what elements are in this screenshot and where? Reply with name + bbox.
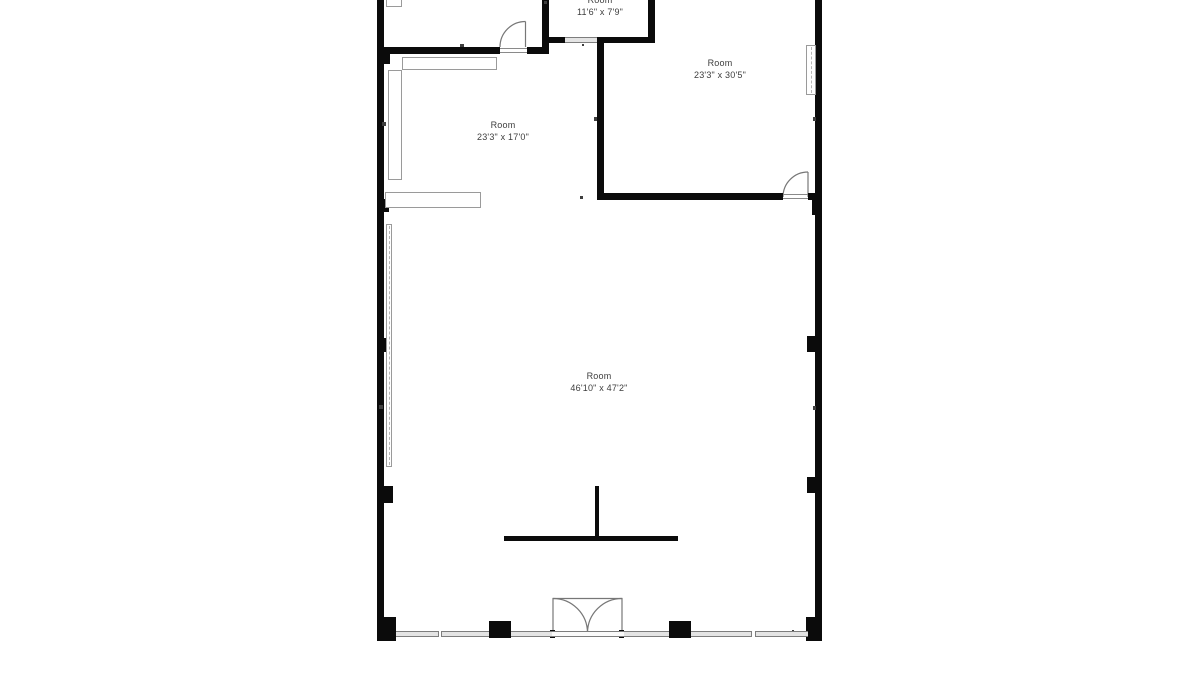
wall-pier — [812, 200, 822, 215]
tick-mark — [460, 44, 464, 47]
threshold-line — [500, 48, 527, 49]
tick-mark — [544, 1, 547, 4]
wall-pier — [807, 336, 822, 352]
wall-segment — [669, 621, 691, 638]
wall-segment — [648, 0, 655, 43]
room-name: Room — [477, 119, 529, 131]
dashed-strip-centerline — [389, 226, 390, 465]
tick-mark — [813, 117, 816, 121]
window-strip — [691, 631, 808, 637]
wall-segment — [806, 617, 822, 641]
door-sill — [552, 631, 624, 637]
dashed-strip — [386, 224, 392, 467]
tick-mark — [379, 405, 383, 409]
window-divider — [438, 631, 442, 637]
tick-mark — [813, 406, 816, 410]
wall-segment — [597, 37, 655, 43]
threshold-line — [783, 198, 808, 199]
wall-segment — [489, 621, 511, 638]
tick-mark — [382, 122, 386, 126]
wall-segment — [597, 193, 783, 200]
window-divider — [751, 631, 756, 637]
wall-segment — [595, 486, 599, 541]
room-dimensions: 23'3" x 30'5" — [694, 69, 746, 81]
room-dimensions: 11'6" x 7'9" — [577, 6, 623, 18]
tick-mark — [580, 196, 583, 199]
room-label-right: Room 23'3" x 30'5" — [694, 57, 746, 81]
wall-pier — [807, 477, 822, 493]
wall-segment — [815, 0, 822, 641]
room-name: Room — [570, 370, 627, 382]
door-swing-arc — [500, 22, 526, 48]
threshold-line — [783, 194, 808, 195]
window-strip — [396, 631, 489, 637]
wall-segment — [549, 37, 565, 43]
tick-mark — [582, 44, 584, 46]
wall-segment — [377, 47, 500, 54]
wall-segment — [542, 0, 549, 54]
threshold-line — [500, 52, 527, 53]
wall-segment — [808, 193, 822, 200]
room-name: Room — [694, 57, 746, 69]
wall-segment — [377, 617, 396, 641]
dashed-strip-centerline — [811, 47, 812, 93]
wall-segment — [597, 37, 604, 200]
room-label-middle: Room 23'3" x 17'0" — [477, 119, 529, 143]
counter-fixture — [385, 192, 481, 208]
wall-pier — [379, 486, 393, 503]
dashed-strip — [806, 45, 816, 95]
wall-segment — [377, 0, 384, 641]
counter-fixture — [388, 70, 402, 180]
room-label-small: Room 11'6" x 7'9" — [577, 0, 623, 18]
wall-segment — [504, 536, 678, 541]
room-dimensions: 23'3" x 17'0" — [477, 131, 529, 143]
window-strip — [565, 37, 597, 43]
window-strip — [624, 631, 669, 637]
door-swing-arc — [553, 599, 588, 634]
floor-plan-canvas: Room 11'6" x 7'9" Room 23'3" x 30'5" Roo… — [0, 0, 1200, 680]
counter-fixture — [402, 57, 497, 70]
door-swing-arc — [588, 599, 623, 634]
window-strip — [511, 631, 552, 637]
room-label-large: Room 46'10" x 47'2" — [570, 370, 627, 394]
wall-pier — [377, 49, 390, 64]
counter-fixture — [386, 0, 402, 7]
tick-mark — [594, 117, 597, 121]
room-dimensions: 46'10" x 47'2" — [570, 382, 627, 394]
